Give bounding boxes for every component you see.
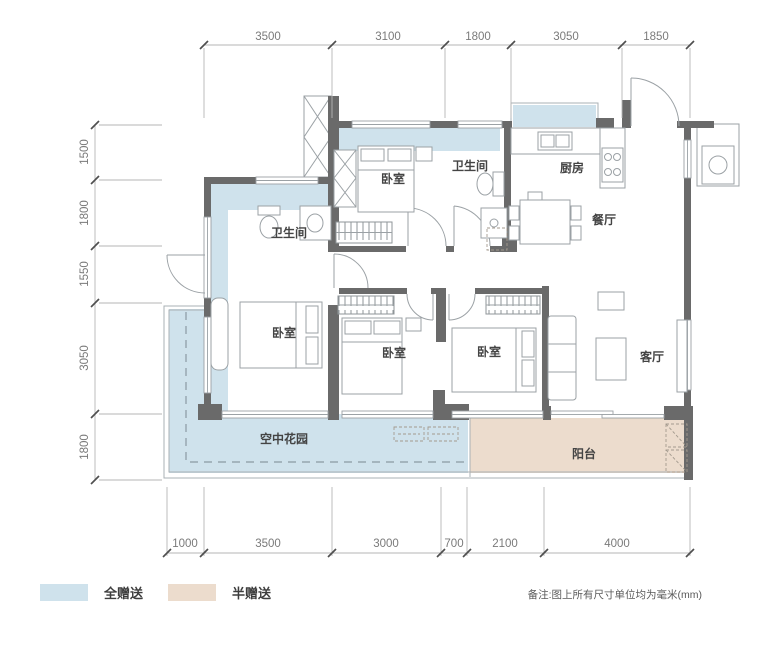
wardrobe <box>338 296 394 314</box>
bed <box>452 328 536 392</box>
dim-bottom-4: 2100 <box>492 538 518 550</box>
room-label-bathroom-top: 卫生间 <box>452 158 488 173</box>
dim-bottom-1: 3500 <box>255 538 281 550</box>
dim-left-1: 1800 <box>79 200 91 226</box>
dining-table <box>509 192 581 244</box>
window <box>204 317 211 393</box>
window <box>452 411 543 418</box>
dim-bottom-5: 4000 <box>604 538 630 550</box>
legend: 全赠送 半赠送 <box>40 584 272 601</box>
shower <box>481 208 507 238</box>
nightstand <box>416 147 432 161</box>
closet <box>334 150 356 207</box>
kitchen-counter <box>511 128 625 188</box>
door-bedroom-right <box>449 294 475 320</box>
dimensions-bottom: 1000 3500 3000 700 2100 4000 <box>163 487 694 557</box>
wardrobe <box>336 222 392 243</box>
legend-swatch-half-gift <box>168 584 216 601</box>
window <box>458 121 502 128</box>
room-label-bedroom-left: 卧室 <box>272 325 296 340</box>
halfgift-area-balcony <box>470 418 686 473</box>
dim-left-3: 3050 <box>79 345 91 371</box>
toilet <box>477 172 504 196</box>
equipment-platform <box>697 124 739 186</box>
tv-console <box>677 320 687 392</box>
shaft <box>304 96 331 177</box>
coffee-table <box>596 338 626 380</box>
dim-left-0: 1500 <box>79 139 91 165</box>
room-label-balcony: 阳台 <box>572 446 596 461</box>
dim-bottom-0: 1000 <box>172 538 198 550</box>
sliding-door <box>551 411 664 418</box>
dim-top-3: 3050 <box>553 31 579 43</box>
door-bedroom-top <box>408 208 446 246</box>
room-label-bedroom-mid: 卧室 <box>382 345 406 360</box>
window <box>342 411 433 418</box>
room-label-bedroom-top: 卧室 <box>381 171 405 186</box>
legend-label-full-gift: 全赠送 <box>103 586 144 601</box>
dim-left-4: 1800 <box>79 434 91 460</box>
dimensions-top: 3500 3100 1800 3050 1850 <box>200 31 694 118</box>
room-label-living: 客厅 <box>639 349 664 364</box>
legend-label-half-gift: 半赠送 <box>232 586 272 601</box>
chaise <box>211 298 228 370</box>
window <box>352 121 430 128</box>
floor-plan: 卧室 卫生间 厨房 餐厅 卫生间 卧室 卧室 卧室 客厅 空中花园 阳台 350… <box>0 0 776 645</box>
legend-swatch-full-gift <box>40 584 88 601</box>
dim-left-2: 1550 <box>79 261 91 287</box>
room-label-dining: 餐厅 <box>592 212 616 227</box>
room-label-kitchen: 厨房 <box>560 160 584 175</box>
entry-door <box>631 78 679 126</box>
nightstand <box>406 318 421 331</box>
door-bedroom-left <box>334 254 368 288</box>
sofa <box>548 316 576 400</box>
room-label-bedroom-right: 卧室 <box>477 344 501 359</box>
window <box>684 140 691 178</box>
room-label-sky-garden: 空中花园 <box>260 431 308 446</box>
gift-area-sky-garden <box>169 414 468 473</box>
room-label-bathroom-left: 卫生间 <box>271 225 307 240</box>
armchair <box>598 292 624 310</box>
window <box>204 217 211 298</box>
door-sky-garden <box>167 255 205 293</box>
window <box>256 177 318 184</box>
floor-plan-page: 卧室 卫生间 厨房 餐厅 卫生间 卧室 卧室 卧室 客厅 空中花园 阳台 350… <box>0 0 776 645</box>
dim-top-2: 1800 <box>465 31 491 43</box>
wardrobe <box>486 296 540 314</box>
dim-top-0: 3500 <box>255 31 281 43</box>
dimensions-left: 1500 1800 1550 3050 1800 <box>79 121 162 484</box>
dim-bottom-3: 700 <box>444 538 463 550</box>
door-bedroom-mid <box>407 294 433 320</box>
gift-area-kitchen-bay <box>513 105 596 127</box>
window <box>222 411 328 418</box>
units-note: 备注:图上所有尺寸单位均为毫米(mm) <box>528 588 702 601</box>
dim-bottom-2: 3000 <box>373 538 399 550</box>
dim-top-4: 1850 <box>643 31 669 43</box>
dim-top-1: 3100 <box>375 31 401 43</box>
